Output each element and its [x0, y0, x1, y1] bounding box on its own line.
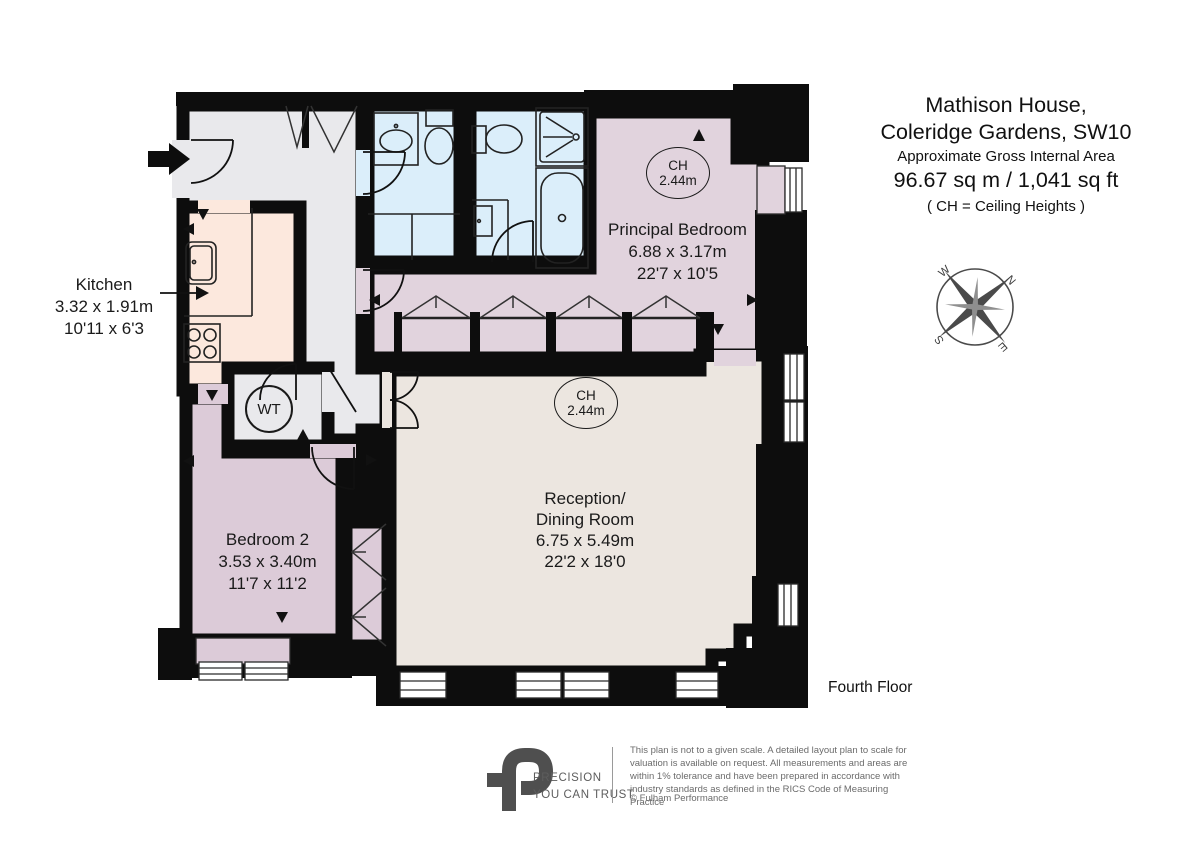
principal-ch-badge: CH 2.44m [646, 147, 710, 199]
room-bathroom-2 [470, 105, 590, 262]
window [676, 672, 718, 698]
principal-imperial: 22'7 x 10'5 [590, 263, 765, 285]
reception-imperial: 22'2 x 18'0 [495, 551, 675, 572]
compass-north-label: N [1003, 274, 1018, 288]
reception-label: Reception/ Dining Room 6.75 x 5.49m 22'2… [495, 488, 675, 572]
copyright-text: © Fulham Performance [630, 793, 728, 804]
property-name-line2: Coleridge Gardens, SW10 [856, 119, 1156, 146]
bedroom2-imperial: 11'7 x 11'2 [190, 573, 345, 595]
ch-value: 2.44m [659, 173, 697, 188]
kitchen-label: Kitchen 3.32 x 1.91m 10'11 x 6'3 [38, 274, 170, 340]
principal-bedroom-label: Principal Bedroom 6.88 x 3.17m 22'7 x 10… [590, 219, 765, 285]
bedroom2-label: Bedroom 2 3.53 x 3.40m 11'7 x 11'2 [190, 529, 345, 595]
wt-label: WT [257, 401, 280, 418]
reception-name-line2: Dining Room [495, 509, 675, 530]
title-block: Mathison House, Coleridge Gardens, SW10 … [856, 92, 1156, 217]
kitchen-metric: 3.32 x 1.91m [38, 296, 170, 318]
footer-divider [612, 747, 613, 803]
bedroom2-metric: 3.53 x 3.40m [190, 551, 345, 573]
window [785, 168, 802, 212]
area-label: Approximate Gross Internal Area [856, 147, 1156, 167]
property-name-line1: Mathison House, [856, 92, 1156, 119]
area-value: 96.67 sq m / 1,041 sq ft [856, 167, 1156, 194]
ch-label: CH [576, 388, 596, 403]
compass-icon: N W S E [909, 241, 1041, 373]
principal-metric: 6.88 x 3.17m [590, 241, 765, 263]
floorplan-page: N W S E Mathison House, Coleridge Garden… [0, 0, 1200, 848]
brand-line1: PRECISION [533, 772, 602, 784]
compass-east-label: E [995, 339, 1009, 353]
principal-name: Principal Bedroom [590, 219, 765, 241]
window [400, 672, 446, 698]
window-bay-tab [757, 166, 785, 214]
window [784, 354, 804, 400]
brand-line2: YOU CAN TRUST [533, 789, 635, 801]
ch-value: 2.44m [567, 403, 605, 418]
kitchen-name: Kitchen [38, 274, 170, 296]
window [516, 672, 561, 698]
window [564, 672, 609, 698]
floor-label: Fourth Floor [828, 679, 912, 697]
ch-label: CH [668, 158, 688, 173]
window-bay-tab [196, 638, 290, 664]
window [245, 662, 288, 680]
window [784, 402, 804, 442]
window [199, 662, 242, 680]
ceiling-height-note: ( CH = Ceiling Heights ) [856, 196, 1156, 217]
wt-closet-badge: WT [245, 385, 293, 433]
bedroom2-name: Bedroom 2 [190, 529, 345, 551]
compass-south-label: S [932, 332, 946, 346]
room-bathroom-1 [368, 105, 460, 262]
reception-ch-badge: CH 2.44m [554, 377, 618, 429]
kitchen-imperial: 10'11 x 6'3 [38, 318, 170, 340]
reception-name-line1: Reception/ [495, 488, 675, 509]
window [778, 584, 798, 626]
reception-metric: 6.75 x 5.49m [495, 530, 675, 551]
